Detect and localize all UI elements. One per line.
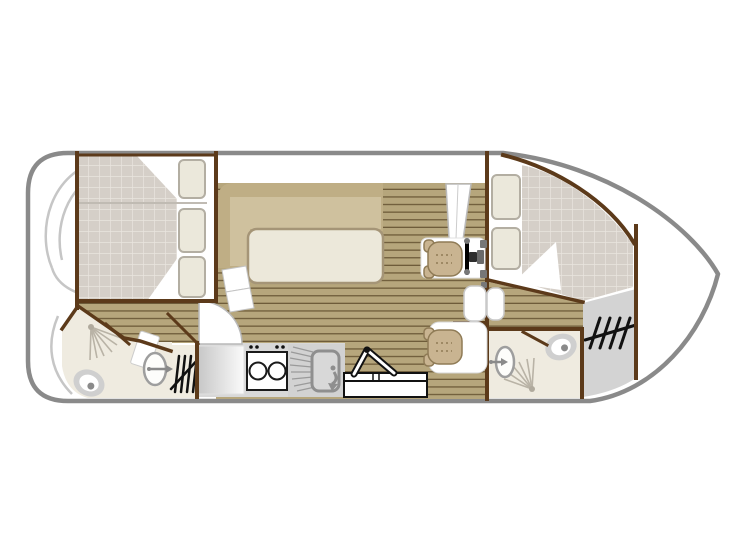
floorplan-canvas: [0, 0, 747, 560]
aft-cabin: [77, 155, 207, 301]
pillow: [179, 209, 205, 252]
helm-seat: [424, 240, 462, 278]
boat-floorplan: [0, 0, 747, 560]
companion-steps: [464, 286, 504, 321]
bow-locker: [583, 289, 636, 397]
seat-cushion: [222, 266, 250, 292]
fridge: [198, 346, 244, 394]
navigator-seat: [424, 322, 487, 373]
pillow: [492, 175, 520, 219]
saloon-table: [248, 229, 383, 283]
pillow: [179, 160, 205, 198]
seat-cushion: [226, 288, 254, 312]
two-burner-stove-icon: [247, 345, 287, 390]
sink-with-drainer-icon: [288, 344, 345, 397]
pillow: [179, 257, 205, 297]
pillow: [492, 228, 520, 269]
